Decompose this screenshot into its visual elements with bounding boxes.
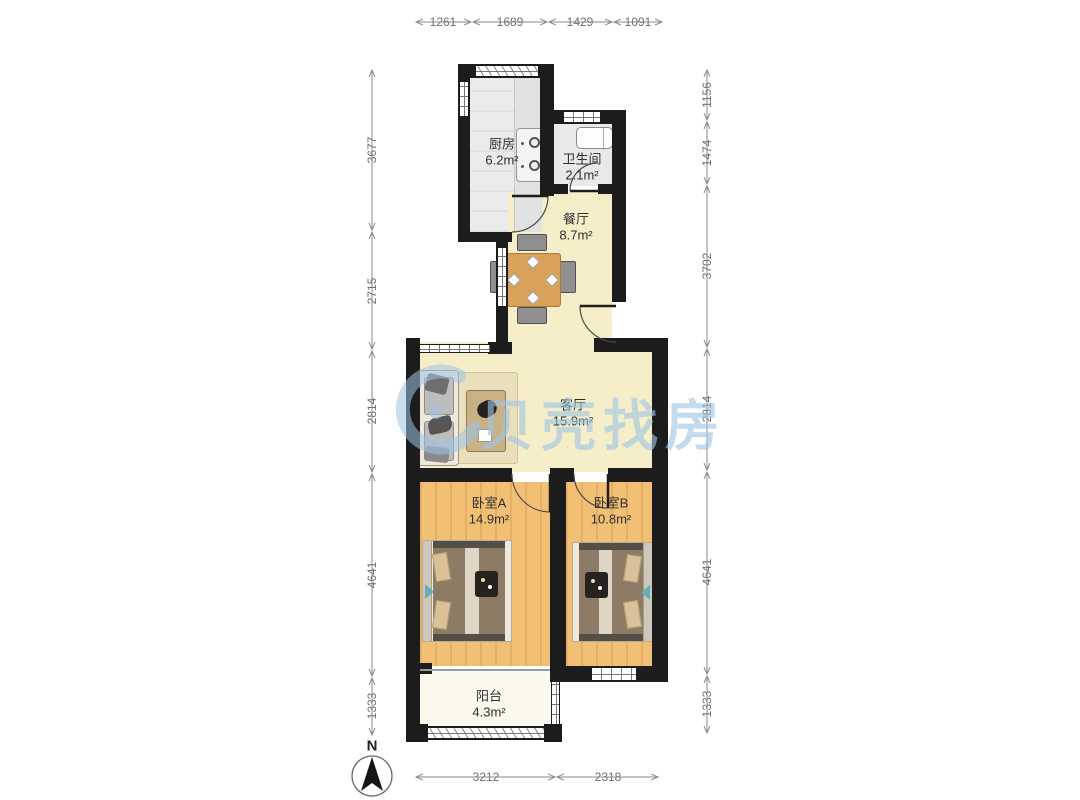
dim-left-5: 1333 <box>365 689 379 724</box>
dim-right-3: 3702 <box>700 249 714 284</box>
bedB-caddy <box>585 572 608 598</box>
dim-right-2: 1474 <box>700 136 714 171</box>
bedA-rail <box>433 634 505 641</box>
dim-left-3: 2814 <box>365 394 379 429</box>
room-label-bedroomB: 卧室B 10.8m² <box>591 495 631 526</box>
wall <box>550 666 592 682</box>
wall <box>406 468 512 482</box>
bedA <box>422 540 512 642</box>
room-label-kitchen: 厨房 6.2m² <box>485 136 518 167</box>
sofa <box>415 370 459 466</box>
dim-right-1: 1156 <box>700 78 714 112</box>
wall <box>612 110 626 302</box>
bedB-rail <box>579 634 643 641</box>
compass-icon <box>352 756 392 796</box>
dim-top-3: 1429 <box>563 15 598 29</box>
dim-bottom-2: 2318 <box>591 770 626 784</box>
room-name: 餐厅 <box>559 211 592 227</box>
wall <box>540 64 554 196</box>
stove-knob-icon <box>521 142 524 145</box>
bathroom-window <box>564 110 600 124</box>
dining-chair <box>517 307 547 324</box>
caddy-dot <box>481 578 485 582</box>
room-name: 卧室A <box>469 495 509 511</box>
caddy-dot <box>488 585 492 589</box>
dim-top-1: 1261 <box>426 15 461 29</box>
room-area: 4.3m² <box>472 704 505 720</box>
dim-left-4: 4641 <box>365 558 379 593</box>
dim-top-2: 1689 <box>493 15 528 29</box>
dim-left-2: 2715 <box>365 274 379 309</box>
stove-burner-icon <box>529 160 540 171</box>
room-name: 阳台 <box>472 688 505 704</box>
room-area: 14.9m² <box>469 511 509 527</box>
bedA-caddy <box>475 571 498 597</box>
dim-bottom-1: 3212 <box>469 770 504 784</box>
sofa-pillow <box>424 446 449 463</box>
wall <box>406 338 420 742</box>
stove-burner-icon <box>529 137 540 148</box>
wall <box>608 468 668 482</box>
kitchen-side-window <box>458 82 470 116</box>
dim-right-5: 4641 <box>700 555 714 590</box>
wall <box>598 184 626 194</box>
living-window <box>420 344 490 353</box>
room-label-bedroomA: 卧室A 14.9m² <box>469 495 509 526</box>
floor-plan-canvas: 贝壳找房 厨房 6.2m² 卫生间 2.1m² 餐厅 8.7m² 客厅 15.9… <box>0 0 1080 800</box>
bedB <box>572 542 652 642</box>
room-label-balcony: 阳台 4.3m² <box>472 688 505 719</box>
wall <box>550 468 566 682</box>
room-label-dining: 餐厅 8.7m² <box>559 211 592 242</box>
kitchen-window <box>476 64 538 78</box>
stove-knob-icon <box>521 165 524 168</box>
watermark-text: 贝壳找房 <box>479 381 727 461</box>
balcony-threshold <box>420 669 552 671</box>
bathtub-icon <box>576 127 613 149</box>
caddy-dot <box>598 586 602 590</box>
dim-left-1: 3677 <box>365 133 379 168</box>
room-area: 6.2m² <box>485 152 518 168</box>
dim-right-6: 1333 <box>700 687 714 722</box>
wall <box>406 724 428 742</box>
bedB-rail <box>579 543 643 550</box>
room-area: 10.8m² <box>591 511 631 527</box>
balcony-side-window <box>551 682 560 724</box>
dining-chair <box>517 234 547 251</box>
room-label-bathroom: 卫生间 2.1m² <box>562 151 601 182</box>
dim-top-4: 1091 <box>621 15 656 29</box>
room-name: 卧室B <box>591 495 631 511</box>
room-area: 2.1m² <box>562 167 601 183</box>
room-name: 厨房 <box>485 136 518 152</box>
wall <box>544 724 562 742</box>
dining-chair <box>560 261 576 293</box>
compass-north-label: N <box>367 738 378 755</box>
caddy-dot <box>591 579 595 583</box>
bathtub-divider <box>603 128 604 150</box>
room-name: 卫生间 <box>562 151 601 167</box>
dining-window <box>496 248 508 306</box>
bedroomB-window <box>592 666 636 682</box>
bedA-rail <box>433 541 505 548</box>
wall <box>636 666 668 682</box>
wall <box>540 184 568 194</box>
wall <box>488 342 512 354</box>
balcony-window <box>428 726 544 740</box>
room-area: 8.7m² <box>559 227 592 243</box>
